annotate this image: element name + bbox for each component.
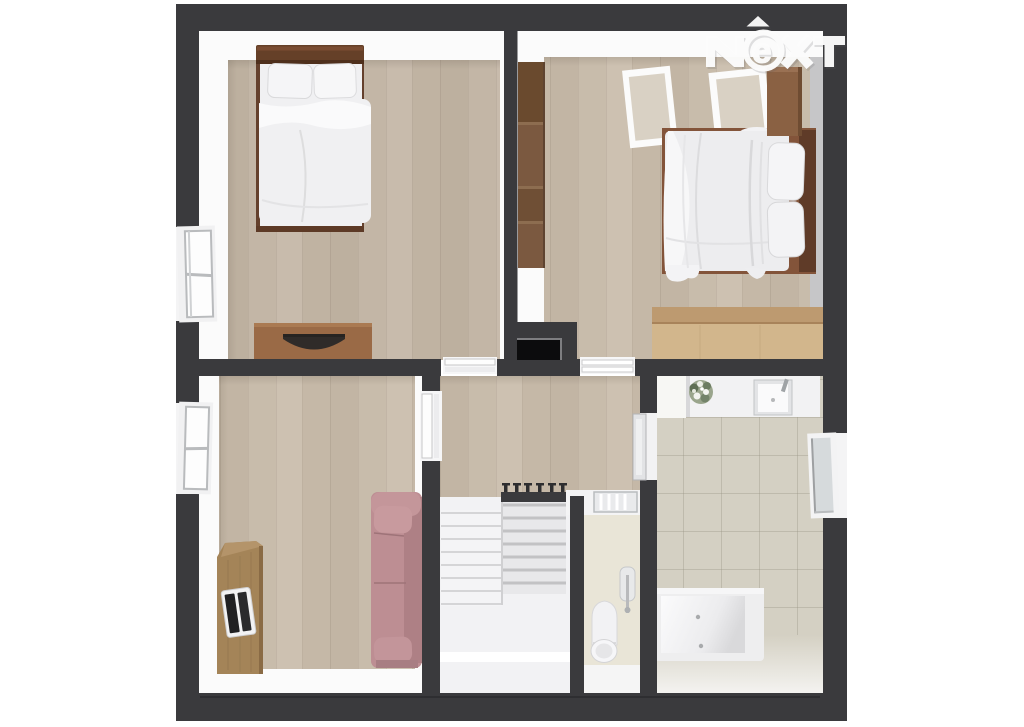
svg-text:e: e — [752, 32, 771, 71]
